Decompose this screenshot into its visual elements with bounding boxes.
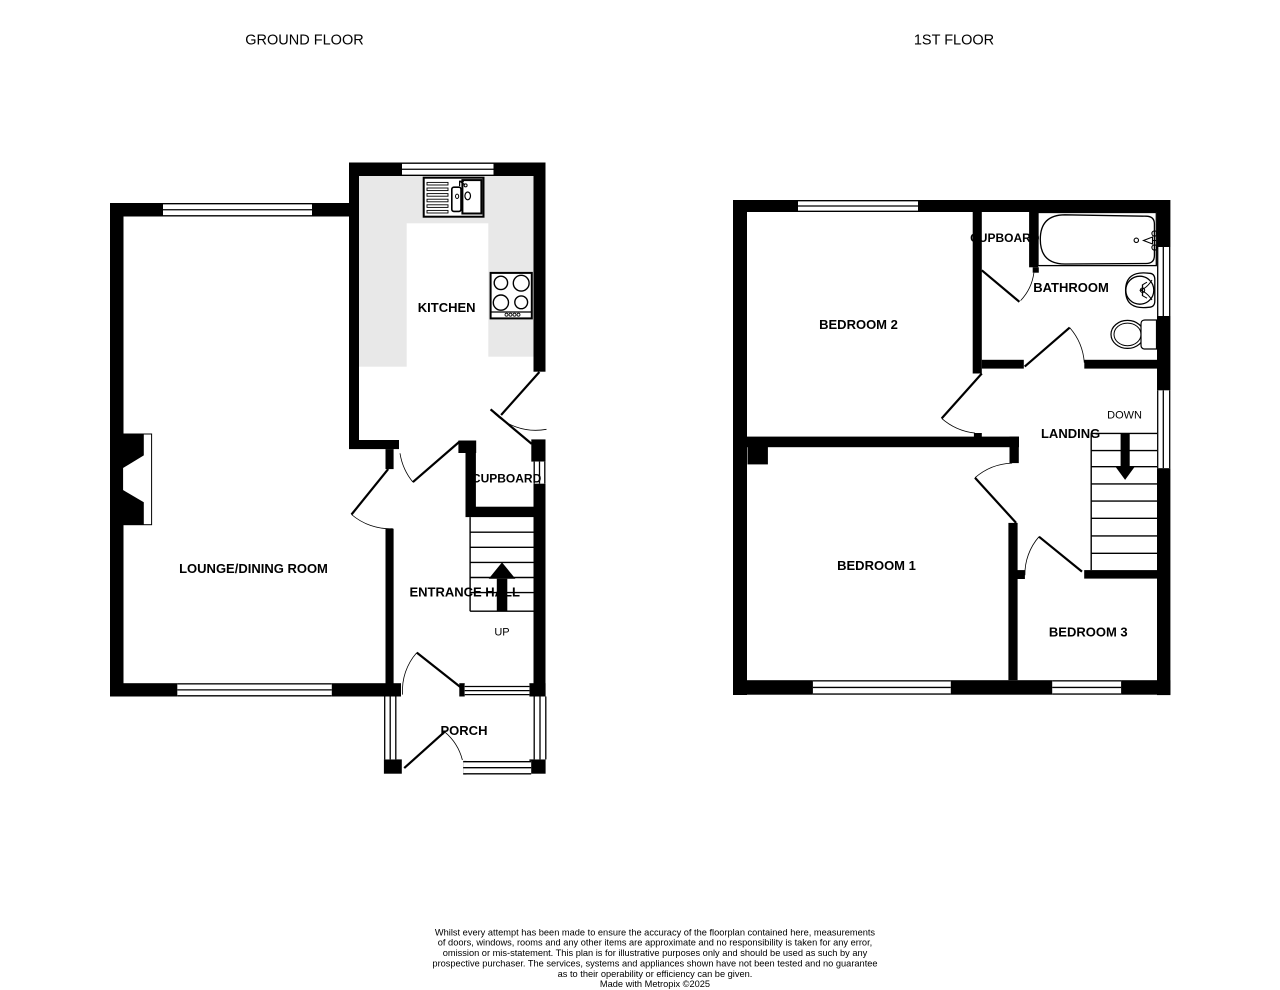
svg-text:CUPBOARD: CUPBOARD [970, 231, 1040, 245]
svg-text:GROUND FLOOR: GROUND FLOOR [245, 33, 363, 49]
svg-text:1ST FLOOR: 1ST FLOOR [914, 33, 994, 49]
svg-text:BEDROOM 1: BEDROOM 1 [837, 558, 916, 573]
svg-text:LOUNGE/DINING ROOM: LOUNGE/DINING ROOM [179, 561, 328, 576]
svg-text:CUPBOARD: CUPBOARD [472, 472, 542, 486]
svg-text:KITCHEN: KITCHEN [418, 300, 476, 315]
svg-text:PORCH: PORCH [441, 723, 488, 738]
svg-text:ENTRANCE HALL: ENTRANCE HALL [409, 584, 520, 599]
svg-text:BEDROOM 2: BEDROOM 2 [819, 317, 898, 332]
svg-text:BEDROOM 3: BEDROOM 3 [1049, 625, 1128, 640]
svg-text:as to their operability or eff: as to their operability or efficiency ca… [558, 969, 753, 979]
svg-text:UP: UP [494, 627, 509, 639]
svg-text:LANDING: LANDING [1041, 426, 1100, 441]
svg-text:Made with Metropix ©2025: Made with Metropix ©2025 [600, 979, 710, 989]
svg-text:BATHROOM: BATHROOM [1033, 280, 1109, 295]
svg-text:of doors, windows, rooms and a: of doors, windows, rooms and any other i… [438, 938, 872, 948]
svg-text:prospective purchaser. The ser: prospective purchaser. The services, sys… [432, 959, 877, 969]
svg-text:Whilst every attempt has been: Whilst every attempt has been made to en… [435, 927, 876, 937]
svg-text:DOWN: DOWN [1107, 409, 1142, 421]
svg-text:omission or mis-statement. Thi: omission or mis-statement. This plan is … [443, 948, 868, 958]
